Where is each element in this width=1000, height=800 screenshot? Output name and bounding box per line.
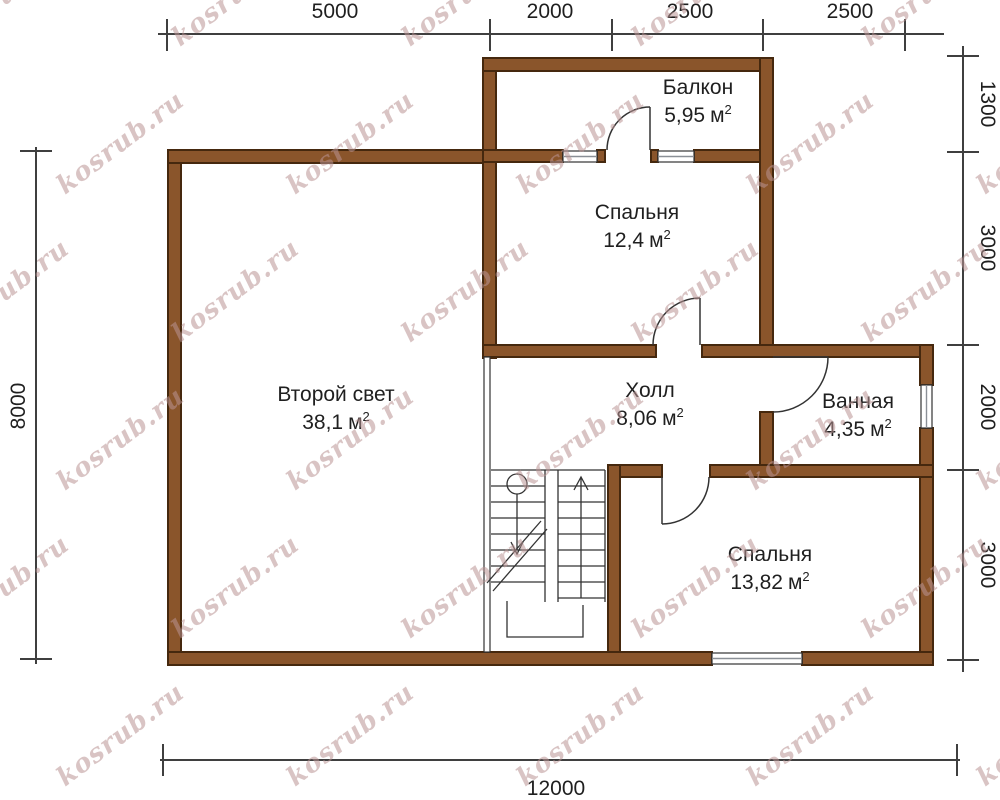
wall-left-outer <box>168 150 181 665</box>
stair-arrow-up <box>574 477 588 598</box>
wall-bottom-seg <box>168 652 712 665</box>
stair-treads-left <box>491 486 545 582</box>
door-swing-arc <box>607 107 650 150</box>
wall-right-outer-seg <box>920 345 933 385</box>
stair-landing <box>507 601 583 637</box>
door-balcony <box>607 107 650 150</box>
wall-east-upper-seg <box>760 58 773 357</box>
wall-middle-seg <box>710 465 933 477</box>
wall-front-seg <box>483 150 563 162</box>
walls <box>168 58 933 665</box>
wall-balcony-top <box>483 58 773 71</box>
door-upper-bedroom <box>653 298 700 345</box>
wall-west-upper <box>483 58 496 358</box>
stair-start-marker <box>507 474 527 494</box>
door-swing-arc <box>773 357 828 412</box>
stair-arrow-down <box>511 494 523 554</box>
wall-right-outer-seg <box>920 428 933 665</box>
wall-front-seg <box>651 150 658 162</box>
wall-bottom-seg <box>802 652 933 665</box>
railing <box>484 357 490 652</box>
wall-hall-top-seg <box>702 345 933 357</box>
door-bathroom <box>773 357 828 412</box>
wall-lower-bedroom-west <box>608 465 620 665</box>
wall-top-west <box>168 150 496 163</box>
door-swing-arc <box>662 477 709 524</box>
floor-plan-svg <box>0 0 1000 800</box>
door-lower-bedroom <box>662 477 709 524</box>
doors <box>607 107 828 524</box>
door-swing-arc <box>653 298 700 345</box>
staircase <box>487 470 605 637</box>
floor-plan: 5000 2000 2500 2500 1300 3000 2000 3000 … <box>0 0 1000 800</box>
wall-hall-top-seg <box>483 345 656 357</box>
wall-front-seg <box>597 150 605 162</box>
